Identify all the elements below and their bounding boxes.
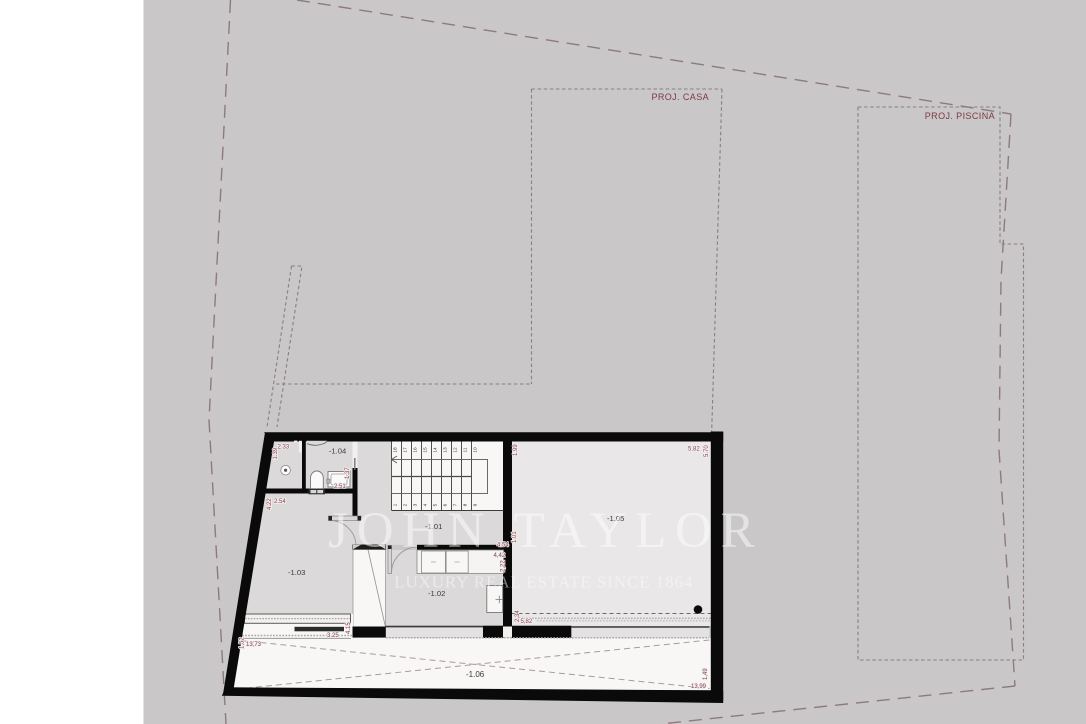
svg-text:4.15: 4.15 xyxy=(346,622,352,634)
svg-text:2.51: 2.51 xyxy=(334,484,346,490)
svg-text:13: 13 xyxy=(442,447,448,453)
svg-text:1,52: 1,52 xyxy=(240,637,246,649)
svg-text:1.37: 1.37 xyxy=(345,467,351,479)
svg-text:5.70: 5.70 xyxy=(704,445,710,457)
svg-text:1.39: 1.39 xyxy=(273,447,279,459)
svg-text:16: 16 xyxy=(412,447,418,453)
svg-text:5,82: 5,82 xyxy=(521,619,533,625)
svg-text:1.99: 1.99 xyxy=(513,444,519,456)
svg-text:14: 14 xyxy=(432,447,438,453)
svg-text:JOHN TAYLOR: JOHN TAYLOR xyxy=(328,503,763,559)
svg-text:18: 18 xyxy=(392,447,398,453)
svg-text:3.25: 3.25 xyxy=(327,633,339,639)
svg-text:PROJ. CASA: PROJ. CASA xyxy=(651,92,709,102)
svg-text:15: 15 xyxy=(422,447,428,453)
svg-text:2,22: 2,22 xyxy=(501,560,507,572)
svg-text:PROJ. PISCINA: PROJ. PISCINA xyxy=(925,111,995,121)
svg-text:LUXURY REAL ESTATE SINCE 1864: LUXURY REAL ESTATE SINCE 1864 xyxy=(394,573,693,592)
svg-text:13,73: 13,73 xyxy=(246,642,262,648)
svg-text:4.22: 4.22 xyxy=(267,498,273,510)
svg-text:13,99: 13,99 xyxy=(691,684,707,690)
svg-text:-1.06: -1.06 xyxy=(466,670,485,679)
svg-text:-1.03: -1.03 xyxy=(288,568,305,577)
svg-text:17: 17 xyxy=(402,447,408,453)
svg-text:2.54: 2.54 xyxy=(274,499,286,505)
svg-text:2.33: 2.33 xyxy=(278,445,290,451)
svg-text:12: 12 xyxy=(452,447,458,453)
svg-text:1,49: 1,49 xyxy=(703,668,709,680)
svg-text:5.82: 5.82 xyxy=(688,447,700,453)
svg-text:-1.04: -1.04 xyxy=(329,446,346,455)
svg-text:11: 11 xyxy=(462,447,468,452)
svg-text:10: 10 xyxy=(472,447,478,453)
